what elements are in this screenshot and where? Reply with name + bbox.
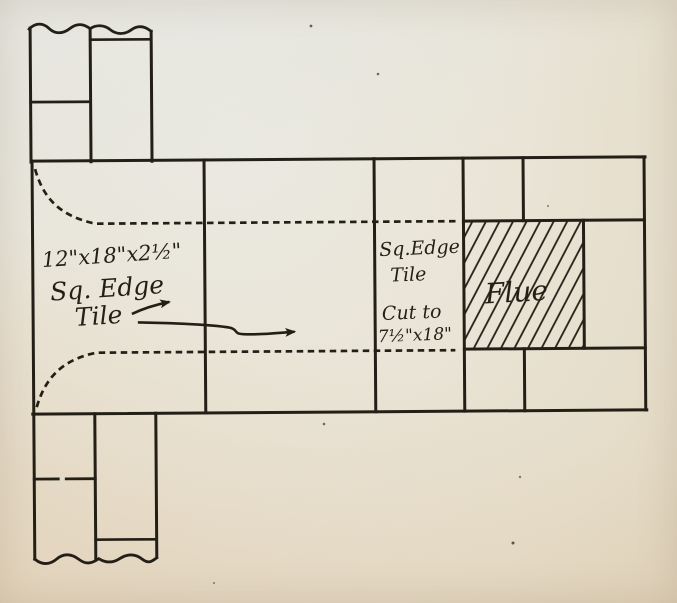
- short-leader-arrow: [133, 302, 168, 313]
- body-left-edge: [32, 161, 34, 414]
- brick-course-below-flue: [464, 348, 645, 349]
- top-wall-right-edge: [151, 31, 152, 161]
- cut-tile-line2-label: Tile: [390, 263, 427, 286]
- cut-tile-line1-label: Sq.Edge: [379, 236, 461, 261]
- cut-tile-size-label: 7½"x18": [377, 324, 452, 347]
- tile-joint-1: [204, 160, 206, 413]
- body-top-edge: [31, 157, 645, 161]
- bottom-wall-right-edge: [156, 413, 157, 557]
- throat-splay-bottom: [36, 350, 455, 407]
- top-wall-center-joint: [90, 29, 91, 162]
- bottom-wall-center-joint: [95, 414, 96, 560]
- scanned-drawing-page: 12"x18"x2½" Sq. Edge Tile Sq.Edge Tile C…: [0, 0, 677, 603]
- tile-joint-3: [463, 158, 465, 411]
- top-wall-stub: [29, 23, 152, 162]
- body-bottom-edge: [33, 410, 647, 414]
- bottom-wall-stub: [34, 413, 157, 563]
- cut-tile-annotation: Sq.Edge Tile Cut to 7½"x18": [374, 236, 464, 347]
- long-leader-arrow: [139, 321, 293, 335]
- left-tile-size-label: 12"x18"x2½": [41, 239, 182, 272]
- flue-label: Flue: [483, 274, 549, 311]
- left-tile-word-label: Tile: [74, 300, 123, 332]
- top-wall-left-edge: [30, 28, 31, 162]
- throat-splay-top: [35, 166, 457, 224]
- bottom-wall-left-edge: [34, 414, 35, 559]
- cut-tile-line3-label: Cut to: [381, 301, 441, 325]
- tile-joint-2: [374, 159, 376, 412]
- chimney-flue-plan-drawing: 12"x18"x2½" Sq. Edge Tile Sq.Edge Tile C…: [0, 0, 677, 603]
- flue-right-edge: [583, 220, 584, 348]
- left-tile-annotation: 12"x18"x2½" Sq. Edge Tile: [41, 239, 186, 334]
- brick-course-above-flue: [463, 220, 644, 221]
- body-right-edge: [644, 157, 646, 410]
- leader-arrows: [133, 301, 293, 335]
